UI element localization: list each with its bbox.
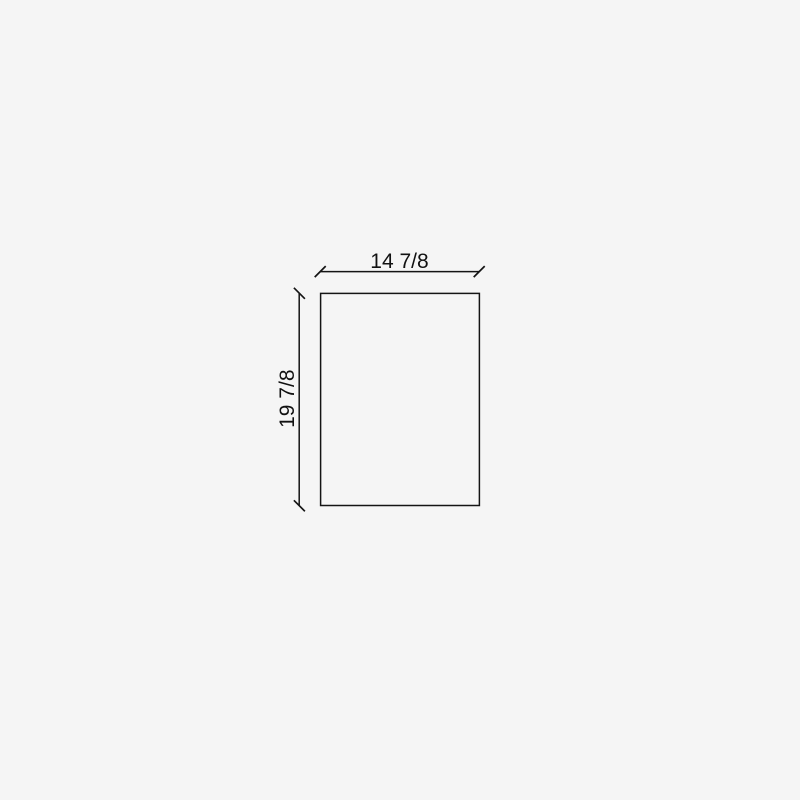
svg-text:19 7/8: 19 7/8 [276,370,299,428]
svg-text:14 7/8: 14 7/8 [370,250,428,273]
